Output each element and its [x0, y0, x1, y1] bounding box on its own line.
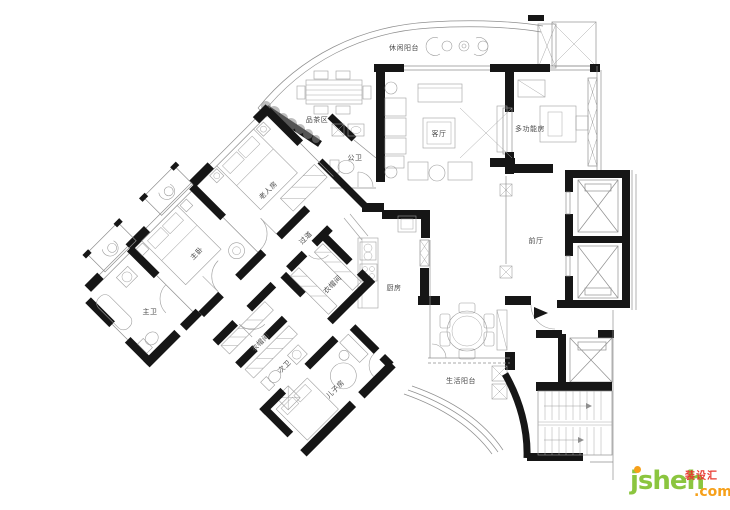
watermark-dot-icon	[634, 466, 641, 473]
stair-steps-icon	[538, 391, 612, 455]
room-label-second-bath: 次卫	[276, 358, 293, 375]
bedroom-wing: 老人房 主卧 过道 衣帽间 次卫 衣帽间 儿子房	[60, 87, 463, 490]
jsheh-watermark: jsheh 装设汇 .com	[630, 464, 730, 508]
room-label-closet-a: 衣帽间	[249, 331, 271, 353]
room-label-multi-function: 多功能房	[515, 124, 545, 133]
watermark-tld: .com	[694, 485, 730, 499]
room-label-elder: 老人房	[257, 179, 279, 201]
balcony-chair-icon	[426, 37, 488, 55]
floor-plan-drawing: 老人房 主卧 过道 衣帽间 次卫 衣帽间 儿子房 休闲阳台 品茶区 客厅 公卫 …	[0, 0, 730, 510]
entry-door-icon	[534, 307, 548, 319]
room-label-master-bath: 主卫	[143, 307, 158, 316]
elder-room	[206, 108, 336, 238]
elevator-block	[557, 170, 636, 310]
foyer	[500, 164, 555, 329]
room-label-public-bath: 公卫	[348, 154, 363, 162]
kitchen	[320, 161, 440, 308]
tea-area	[297, 71, 371, 114]
living-room	[374, 64, 600, 182]
closet-b	[280, 232, 375, 327]
watermark-cn: 装设汇	[685, 472, 718, 482]
room-label-foyer: 前厅	[529, 236, 544, 245]
floor-plan-page: 老人房 主卧 过道 衣帽间 次卫 衣帽间 儿子房 休闲阳台 品茶区 客厅 公卫 …	[0, 0, 730, 510]
service-balcony	[404, 344, 583, 461]
room-label-closet-b: 衣帽间	[321, 273, 343, 295]
dining-area	[430, 300, 515, 370]
room-label-master: 主卧	[188, 245, 205, 262]
room-label-tea-area: 品茶区	[306, 115, 329, 124]
hallway	[176, 188, 333, 345]
room-label-living: 客厅	[432, 129, 447, 138]
room-label-kitchen: 厨房	[387, 283, 402, 292]
elevator-icon	[578, 180, 618, 232]
elevator-icon	[578, 246, 618, 298]
multi-function-room	[518, 66, 601, 170]
room-label-service-balcony: 生活阳台	[446, 376, 476, 385]
room-label-leisure-balcony: 休闲阳台	[389, 43, 419, 52]
room-label-hallway: 过道	[297, 229, 314, 246]
son-room	[259, 319, 397, 457]
